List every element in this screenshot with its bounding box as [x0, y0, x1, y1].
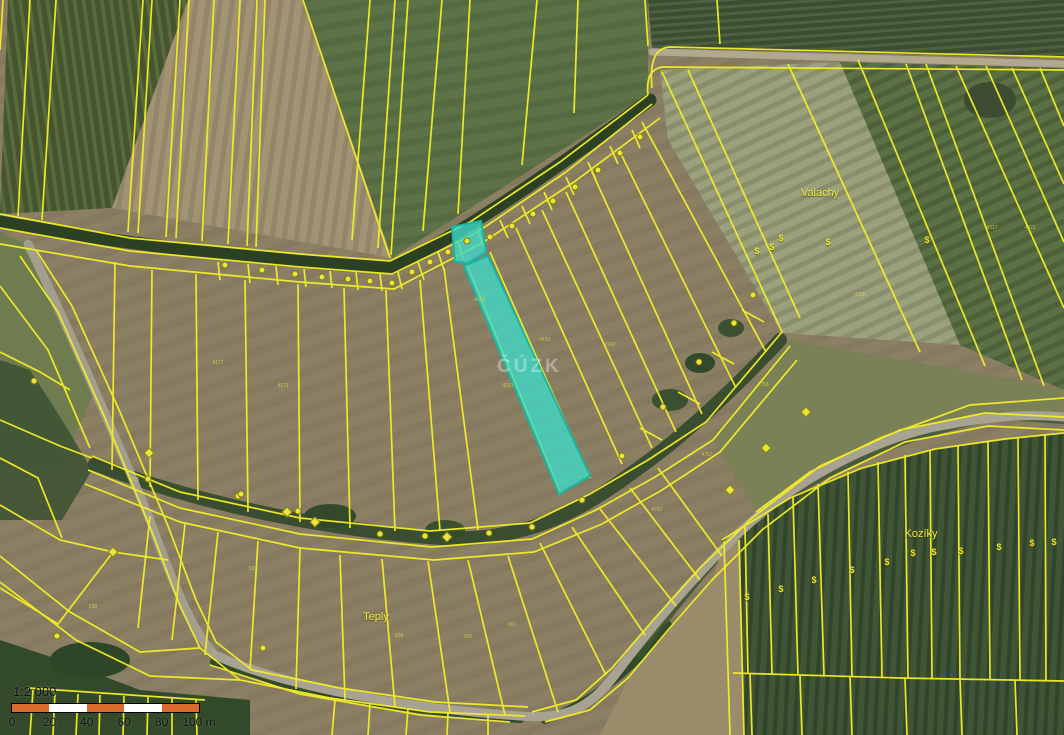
scale-ratio-label: 1:2 000	[13, 684, 56, 699]
scale-bar: 1:2 000 020406080100 m	[8, 684, 238, 732]
scale-tick-label: 100 m	[182, 715, 215, 729]
scale-segment	[49, 704, 86, 712]
scale-tick-label: 80	[155, 715, 168, 729]
scale-tick-label: 0	[9, 715, 16, 729]
scale-tick-label: 20	[43, 715, 56, 729]
aerial-and-parcel-layers	[0, 0, 1064, 735]
cadastral-map-canvas[interactable]: ČÚZK ValachyKozíkyTeplý63863161560860560…	[0, 0, 1064, 735]
scale-segment	[124, 704, 161, 712]
scale-segment	[162, 704, 199, 712]
scale-segment	[87, 704, 124, 712]
scale-bar-segments	[11, 703, 200, 713]
scale-segment	[12, 704, 49, 712]
scale-tick-label: 60	[118, 715, 131, 729]
scale-tick-label: 40	[80, 715, 93, 729]
